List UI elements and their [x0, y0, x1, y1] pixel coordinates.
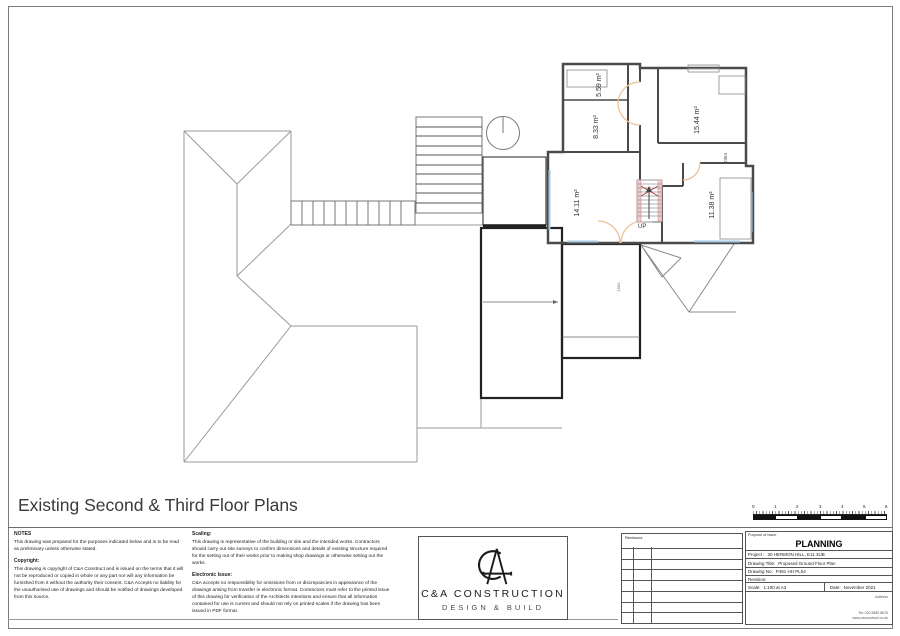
stair-band-horizontal — [291, 201, 415, 225]
copyright-body: This drawing is copyright of C&A Constru… — [14, 567, 184, 602]
drawing-no-label: Drawing No: — [748, 569, 773, 574]
scaling-heading: Scaling: — [192, 531, 390, 538]
scale-bar-blocks — [753, 515, 887, 520]
company-tagline: DESIGN & BUILD — [442, 603, 544, 612]
scale-value: 1:100 at A3 — [764, 585, 787, 590]
notes-body: This drawing was prepared for the purpos… — [14, 540, 184, 554]
room-label-8-33: 8.33 m² — [593, 114, 600, 138]
graphic-scale-bar: 0 1 2 3 4 5 6 — [753, 504, 889, 523]
company-logo-box: C&A CONSTRUCTION DESIGN & BUILD — [418, 536, 568, 620]
lower-roof-blocks — [481, 157, 640, 398]
drawing-title-value: Proposed Ground Floor Plan — [778, 561, 835, 566]
company-name: C&A CONSTRUCTION — [421, 588, 565, 600]
bottom-strip-divider — [8, 527, 893, 528]
revision-row — [622, 612, 742, 623]
scale-number: 3 — [819, 504, 822, 509]
room-label-11-38: 11.38 m² — [709, 191, 716, 219]
scale-number: 5 — [863, 504, 866, 509]
date-value: November 2021 — [844, 585, 876, 590]
scale-number: 6 — [885, 504, 888, 509]
revision-row — [622, 602, 742, 613]
stair-up-label: UP — [638, 224, 646, 230]
room-label-5-59: 5.59 m² — [596, 72, 603, 96]
revisions-column-line — [651, 547, 652, 623]
scaling-column: Scaling: This drawing is representative … — [192, 531, 390, 620]
roof-plan — [184, 131, 562, 462]
date-label: Date: — [830, 585, 841, 590]
electronic-issue-heading: Electronic Issue: — [192, 572, 390, 579]
copyright-heading: Copyright: — [14, 558, 184, 565]
scale-cell: Scale: 1:100 at A3 — [746, 583, 825, 591]
contact-cell: Address Tel: 020 8480 8675 www.caconstru… — [746, 592, 892, 624]
scaling-body: This drawing is representative of the bu… — [192, 540, 390, 568]
revisions-heading: Revisions — [622, 534, 742, 548]
date-cell: Date: November 2021 — [828, 583, 892, 591]
hip-roof-lines — [641, 244, 736, 312]
dimension-1902: 1902 — [616, 282, 621, 292]
title-block: Purpose of Issue PLANNING Project : 30 H… — [745, 531, 893, 625]
room-label-14-11: 14.11 m² — [574, 189, 581, 217]
scale-date-row: Scale: 1:100 at A3 Date: November 2021 — [746, 583, 892, 592]
scale-label: Scale: — [748, 585, 761, 590]
purpose-label: Purpose of Issue — [748, 533, 777, 537]
revision-row — [622, 580, 742, 591]
staircase — [637, 180, 663, 222]
notes-column: NOTES This drawing was prepared for the … — [14, 531, 184, 606]
ca-monogram-icon — [464, 545, 522, 587]
revision-row — [622, 548, 742, 559]
revision-label: Revision: — [748, 577, 767, 582]
drawing-title-label: Drawing Title: — [748, 561, 775, 566]
electronic-issue-body: C&A accepts no responsibility for omissi… — [192, 581, 390, 616]
drawing-no-value: P481 HH PL04 — [776, 569, 806, 574]
scale-number: 0 — [752, 504, 755, 509]
drawing-title-row: Drawing Title: Proposed Ground Floor Pla… — [746, 559, 892, 568]
floor-plan-drawing: 5.59 m² 8.33 m² 15.44 m² 14.11 m² 11.38 … — [0, 0, 900, 527]
purpose-row: Purpose of Issue PLANNING — [746, 532, 892, 551]
purpose-value: PLANNING — [748, 539, 890, 549]
room-label-15-44: 15.44 m² — [694, 106, 701, 134]
stair-band-vertical — [416, 117, 482, 213]
project-row: Project : 30 HERMON HILL, E11 3UB — [746, 551, 892, 559]
revision-row — [622, 569, 742, 580]
revisions-table: Revisions — [621, 533, 743, 624]
address-label: Address — [875, 595, 888, 599]
dimension-2364: 2364 — [723, 152, 728, 163]
notes-heading: NOTES — [14, 531, 184, 538]
scale-number: 1 — [774, 504, 777, 509]
revision-row — [622, 591, 742, 602]
telephone-text: Tel: 020 8480 8675 — [858, 611, 888, 615]
scale-number: 2 — [796, 504, 799, 509]
revision-row — [622, 559, 742, 570]
sheet-title: Existing Second & Third Floor Plans — [18, 495, 298, 516]
scale-number: 4 — [841, 504, 844, 509]
revision-row-label: Revision: — [746, 576, 892, 583]
drawing-sheet: 5.59 m² 8.33 m² 15.44 m² 14.11 m² 11.38 … — [0, 0, 900, 636]
revisions-column-line — [633, 547, 634, 623]
circle-symbol — [487, 117, 520, 150]
project-value: 30 HERMON HILL, E11 3UB — [768, 552, 825, 557]
website-text: www.caconstruct.co.uk — [852, 616, 888, 620]
drawing-no-row: Drawing No: P481 HH PL04 — [746, 568, 892, 576]
project-label: Project : — [748, 552, 765, 557]
